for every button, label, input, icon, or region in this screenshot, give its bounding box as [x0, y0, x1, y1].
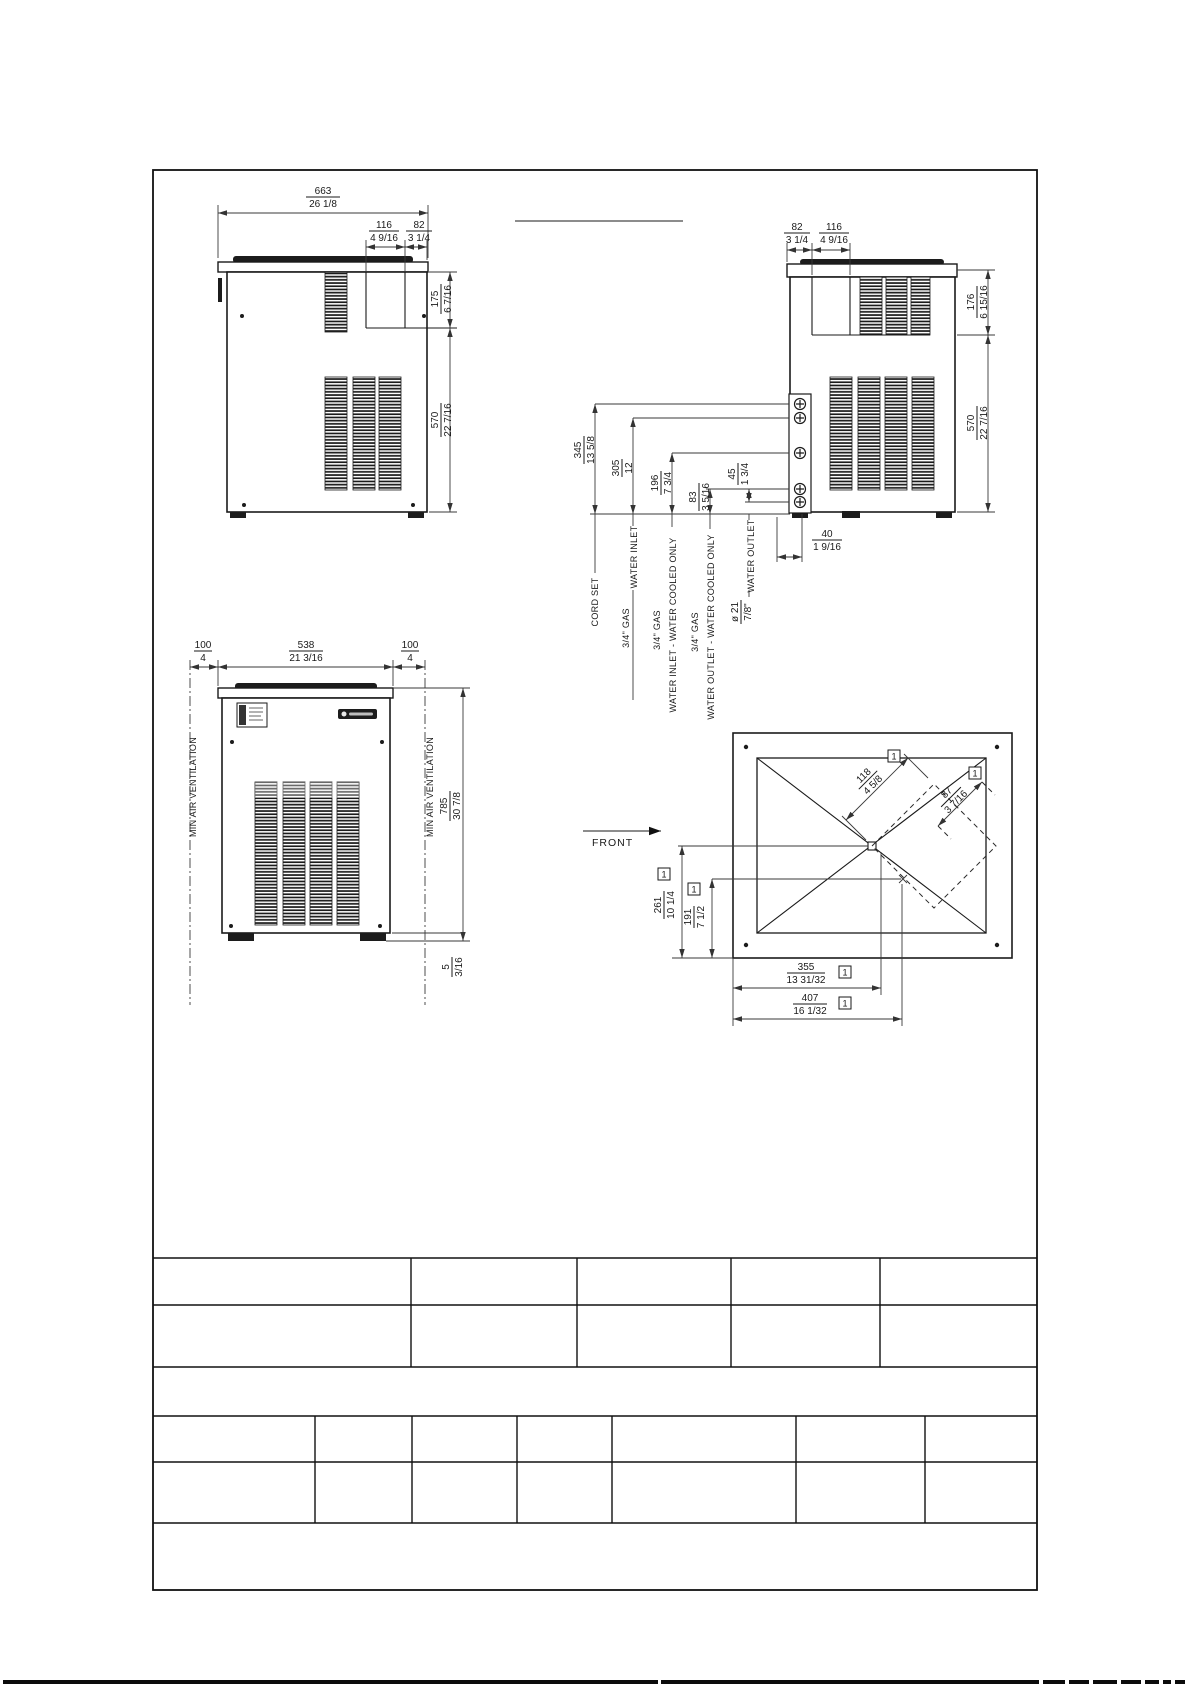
svg-text:4 9/16: 4 9/16	[820, 235, 848, 246]
label-min-air-right: MIN AIR VENTILATION	[425, 737, 435, 837]
label-cord-set: CORD SET	[590, 577, 600, 626]
side-louver-2	[353, 377, 375, 490]
svg-text:13 5/8: 13 5/8	[586, 436, 597, 464]
dim-wc-inlet-height: 196 7 3/4	[650, 471, 674, 495]
back-louver-1	[830, 377, 852, 490]
svg-text:785: 785	[439, 797, 450, 814]
svg-text:ø 21: ø 21	[730, 602, 741, 622]
back-view: 82 3 1/4 116 4 9/16 176 6 15/16 570 22 7…	[573, 222, 995, 720]
svg-text:191: 191	[683, 908, 694, 925]
svg-text:7/8": 7/8"	[743, 603, 754, 621]
svg-text:3/16: 3/16	[454, 957, 465, 977]
screw-icon	[380, 740, 384, 744]
screw-icon	[230, 740, 234, 744]
dim-cord-height: 345 13 5/8	[573, 436, 597, 464]
dim-drain: ø 21 7/8"	[730, 600, 754, 624]
screw-icon	[240, 314, 244, 318]
svg-text:100: 100	[402, 640, 419, 651]
note-ref-box: 1	[969, 767, 981, 779]
brand-badge	[338, 709, 377, 719]
dim-clearance-right: 100 4	[401, 640, 419, 664]
svg-text:355: 355	[798, 962, 815, 973]
svg-text:570: 570	[966, 414, 977, 431]
svg-text:10 1/4: 10 1/4	[666, 891, 677, 919]
svg-text:12: 12	[624, 462, 635, 474]
dim-clearance-left: 100 4	[194, 640, 212, 664]
drain-fitting	[842, 511, 860, 518]
note-ref-box: 1	[839, 966, 851, 978]
dim-outlet-gap: 45 1 3/4	[727, 462, 751, 485]
svg-text:13 31/32: 13 31/32	[787, 975, 826, 986]
svg-text:6 7/16: 6 7/16	[443, 285, 454, 313]
mounting-hole	[995, 943, 999, 947]
svg-text:3 5/16: 3 5/16	[701, 483, 712, 511]
side-hinge	[218, 278, 222, 302]
svg-text:5: 5	[441, 964, 452, 970]
svg-text:663: 663	[315, 186, 332, 197]
dim-back-grille-w: 116 4 9/16	[819, 222, 849, 246]
svg-text:407: 407	[802, 993, 819, 1004]
brand-logo-icon	[342, 712, 347, 717]
dim-inlet-height: 305 12	[611, 459, 635, 477]
svg-text:26 1/8: 26 1/8	[309, 199, 337, 210]
svg-text:345: 345	[573, 441, 584, 458]
back-louver-4	[912, 377, 934, 490]
svg-text:1 3/4: 1 3/4	[740, 462, 751, 485]
foot	[936, 512, 952, 518]
svg-text:40: 40	[821, 529, 833, 540]
back-grille-1	[860, 277, 882, 335]
label-min-air-left: MIN AIR VENTILATION	[188, 737, 198, 837]
svg-text:82: 82	[413, 220, 425, 231]
svg-text:1: 1	[842, 968, 847, 978]
dim-center-from-rear: 261 10 1/4	[653, 891, 677, 919]
svg-text:116: 116	[376, 220, 392, 231]
label-water-inlet-wc: WATER INLET - WATER COOLED ONLY	[668, 538, 678, 713]
svg-text:4: 4	[407, 653, 413, 664]
svg-text:6 15/16: 6 15/16	[979, 285, 990, 319]
screw-icon	[422, 314, 426, 318]
svg-text:3 1/4: 3 1/4	[786, 235, 809, 246]
title-block-columns-lower	[315, 1416, 925, 1523]
svg-text:1: 1	[842, 999, 847, 1009]
dim-chute-from-side: 407 16 1/32	[793, 993, 827, 1017]
svg-text:4: 4	[200, 653, 206, 664]
screw-icon	[378, 924, 382, 928]
foot	[408, 512, 424, 518]
back-louver-3	[885, 377, 907, 490]
svg-text:22 7/16: 22 7/16	[443, 403, 454, 437]
label-water-outlet: WATER OUTLET	[746, 519, 756, 592]
screw-icon	[242, 503, 246, 507]
screw-icon	[229, 924, 233, 928]
svg-text:1: 1	[972, 769, 977, 779]
note-ref-box: 1	[688, 883, 700, 895]
svg-text:21 3/16: 21 3/16	[289, 653, 323, 664]
front-lid	[218, 688, 393, 698]
dim-chute-from-rear: 191 7 1/2	[683, 905, 707, 928]
back-louver-2	[858, 377, 880, 490]
scan-artifact-bar	[3, 1680, 1185, 1684]
svg-text:1: 1	[891, 752, 896, 762]
label-gas-inlet-wc: 3/4" GAS	[652, 610, 662, 650]
label-water-inlet: WATER INLET	[629, 525, 639, 588]
label-front: FRONT	[592, 837, 633, 849]
front-view: 100 4 538 21 3/16 100 4 MIN AIR VENTILAT…	[188, 640, 470, 1005]
dim-front-height: 785 30 7/8	[439, 791, 463, 821]
svg-text:16 1/32: 16 1/32	[793, 1006, 827, 1017]
side-louver-3	[379, 377, 401, 490]
svg-text:261: 261	[653, 896, 664, 913]
svg-text:7 1/2: 7 1/2	[696, 905, 707, 928]
title-block	[153, 1258, 1037, 1523]
svg-text:1 9/16: 1 9/16	[813, 542, 841, 553]
nameplate	[237, 703, 267, 727]
svg-text:1: 1	[661, 870, 666, 880]
svg-text:7 3/4: 7 3/4	[663, 471, 674, 494]
side-view: 663 26 1/8 116 4 9/16 82 3 1/4 175 6 7/1…	[218, 186, 457, 518]
svg-text:30 7/8: 30 7/8	[452, 792, 463, 820]
side-lid	[218, 262, 428, 272]
dim-back-top-h: 176 6 15/16	[966, 285, 990, 319]
dim-side-offset: 40 1 9/16	[812, 529, 842, 553]
label-gas-outlet-wc: 3/4" GAS	[690, 612, 700, 652]
svg-text:45: 45	[727, 468, 738, 480]
back-grille-3	[911, 277, 930, 335]
back-grille-2	[886, 277, 907, 335]
plan-view: FRONT 118 4 5/8 1 87 3 7/16 1 261 10 1/4	[583, 733, 1012, 1026]
svg-text:538: 538	[298, 640, 315, 651]
note-ref-box: 1	[658, 868, 670, 880]
svg-text:83: 83	[688, 491, 699, 503]
dim-side-grille-w: 116 4 9/16	[369, 220, 399, 244]
dim-feet-height: 5 3/16	[441, 957, 465, 977]
label-water-outlet-wc: WATER OUTLET - WATER COOLED ONLY	[706, 534, 716, 719]
foot	[230, 512, 246, 518]
dim-back-grille-off: 82 3 1/4	[784, 222, 810, 246]
front-body	[222, 698, 390, 933]
dim-wc-outlet-height: 83 3 5/16	[688, 483, 712, 511]
svg-text:116: 116	[826, 222, 842, 233]
dim-center-from-side: 355 13 31/32	[787, 962, 826, 986]
svg-text:4 9/16: 4 9/16	[370, 233, 398, 244]
side-louver-1	[325, 377, 347, 490]
note-ref-box: 1	[839, 997, 851, 1009]
dim-front-width: 538 21 3/16	[289, 640, 323, 664]
svg-text:570: 570	[430, 411, 441, 428]
drawing-page: 663 26 1/8 116 4 9/16 82 3 1/4 175 6 7/1…	[0, 0, 1191, 1685]
svg-text:176: 176	[966, 293, 977, 310]
svg-text:196: 196	[650, 474, 661, 491]
dim-back-body-h: 570 22 7/16	[966, 406, 990, 440]
note-ref-box: 1	[888, 750, 900, 762]
label-gas-inlet: 3/4" GAS	[621, 608, 631, 648]
svg-text:22 7/16: 22 7/16	[979, 406, 990, 440]
foot	[360, 933, 386, 941]
dim-side-top-h: 175 6 7/16	[430, 284, 454, 314]
dim-side-body-h: 570 22 7/16	[430, 403, 454, 437]
mounting-hole	[744, 943, 748, 947]
dimension-drawing: 663 26 1/8 116 4 9/16 82 3 1/4 175 6 7/1…	[0, 0, 1191, 1685]
foot	[228, 933, 254, 941]
svg-text:175: 175	[430, 290, 441, 307]
svg-text:82: 82	[791, 222, 803, 233]
svg-text:100: 100	[195, 640, 212, 651]
title-block-columns-upper	[411, 1258, 880, 1367]
screw-icon	[411, 503, 415, 507]
svg-text:3 1/4: 3 1/4	[408, 233, 431, 244]
mounting-hole	[995, 745, 999, 749]
mounting-hole	[744, 745, 748, 749]
side-louver-top	[325, 272, 347, 332]
dim-side-width: 663 26 1/8	[306, 186, 340, 210]
back-lid	[787, 264, 957, 277]
svg-text:305: 305	[611, 459, 622, 476]
svg-text:1: 1	[691, 885, 696, 895]
